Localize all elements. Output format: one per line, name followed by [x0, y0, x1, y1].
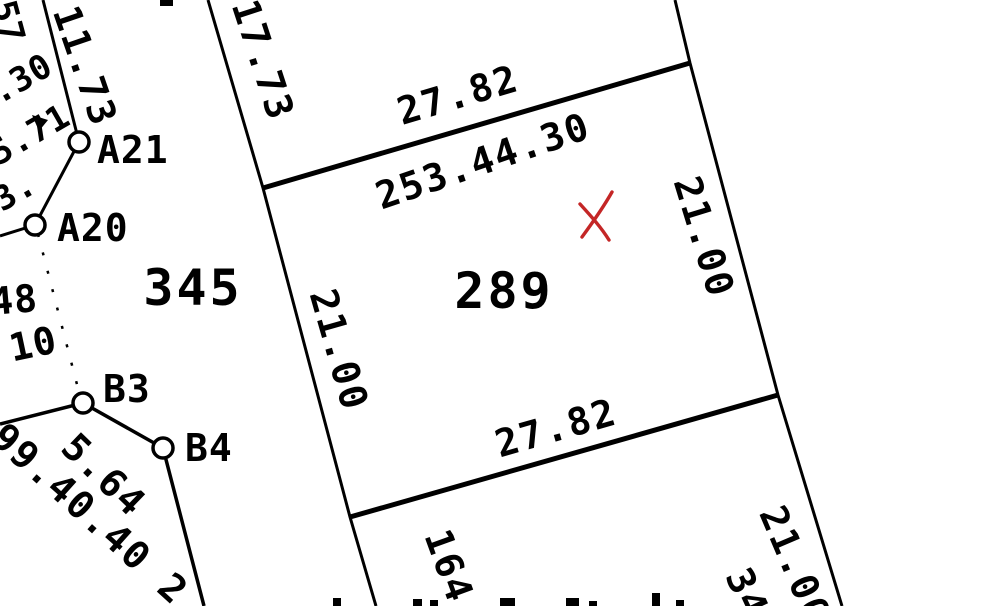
survey-point-label-a21: A21	[97, 128, 169, 172]
cutoff-mark-bottom-7	[652, 593, 660, 606]
parcel-number-345: 345	[143, 259, 242, 317]
cutoff-mark-bottom-5	[566, 598, 579, 606]
cutoff-mark-bottom-2	[413, 599, 422, 606]
dimension-21-00-left: 21.00	[301, 284, 378, 416]
dimension-17-73: 17.73	[223, 0, 303, 126]
survey-node-b3	[73, 393, 93, 413]
plat-map-canvas[interactable]: 345 289 A21 A20 B3 B4 11.73 17.73 27.82 …	[0, 0, 1000, 606]
cutoff-mark-top	[160, 0, 173, 6]
survey-node-a21	[69, 132, 89, 152]
survey-node-b4	[153, 438, 173, 458]
survey-point-label-a20: A20	[57, 206, 129, 250]
red-x-mark	[580, 192, 612, 240]
edge-fragment-3: 3.	[0, 164, 44, 220]
dimension-34-partial: 34	[717, 561, 778, 606]
edge-fragment-57: 57	[0, 0, 33, 48]
cutoff-mark-bottom-1	[333, 598, 341, 606]
dimension-21-00-right: 21.00	[665, 171, 743, 303]
edge-fragment-10: 10	[5, 318, 61, 371]
dimension-164: 164	[416, 523, 483, 606]
plat-map-drawing: 345 289 A21 A20 B3 B4 11.73 17.73 27.82 …	[0, 0, 1000, 606]
cutoff-mark-bottom-4	[500, 598, 515, 606]
dashed-boundary-a20-b3	[38, 234, 80, 396]
dimension-27-82-top: 27.82	[392, 56, 524, 134]
survey-node-a20	[25, 215, 45, 235]
cutoff-mark-bottom-6	[589, 601, 597, 606]
cutoff-mark-bottom-3	[430, 600, 438, 606]
cutoff-mark-bottom-8	[676, 600, 684, 606]
parcel-number-289: 289	[454, 262, 553, 320]
dimension-27-82-bottom: 27.82	[490, 390, 622, 467]
red-x-stroke-left	[582, 192, 612, 237]
survey-point-label-b3: B3	[103, 367, 151, 411]
edge-fragment-48: 48	[0, 276, 40, 324]
survey-point-label-b4: B4	[185, 426, 233, 470]
